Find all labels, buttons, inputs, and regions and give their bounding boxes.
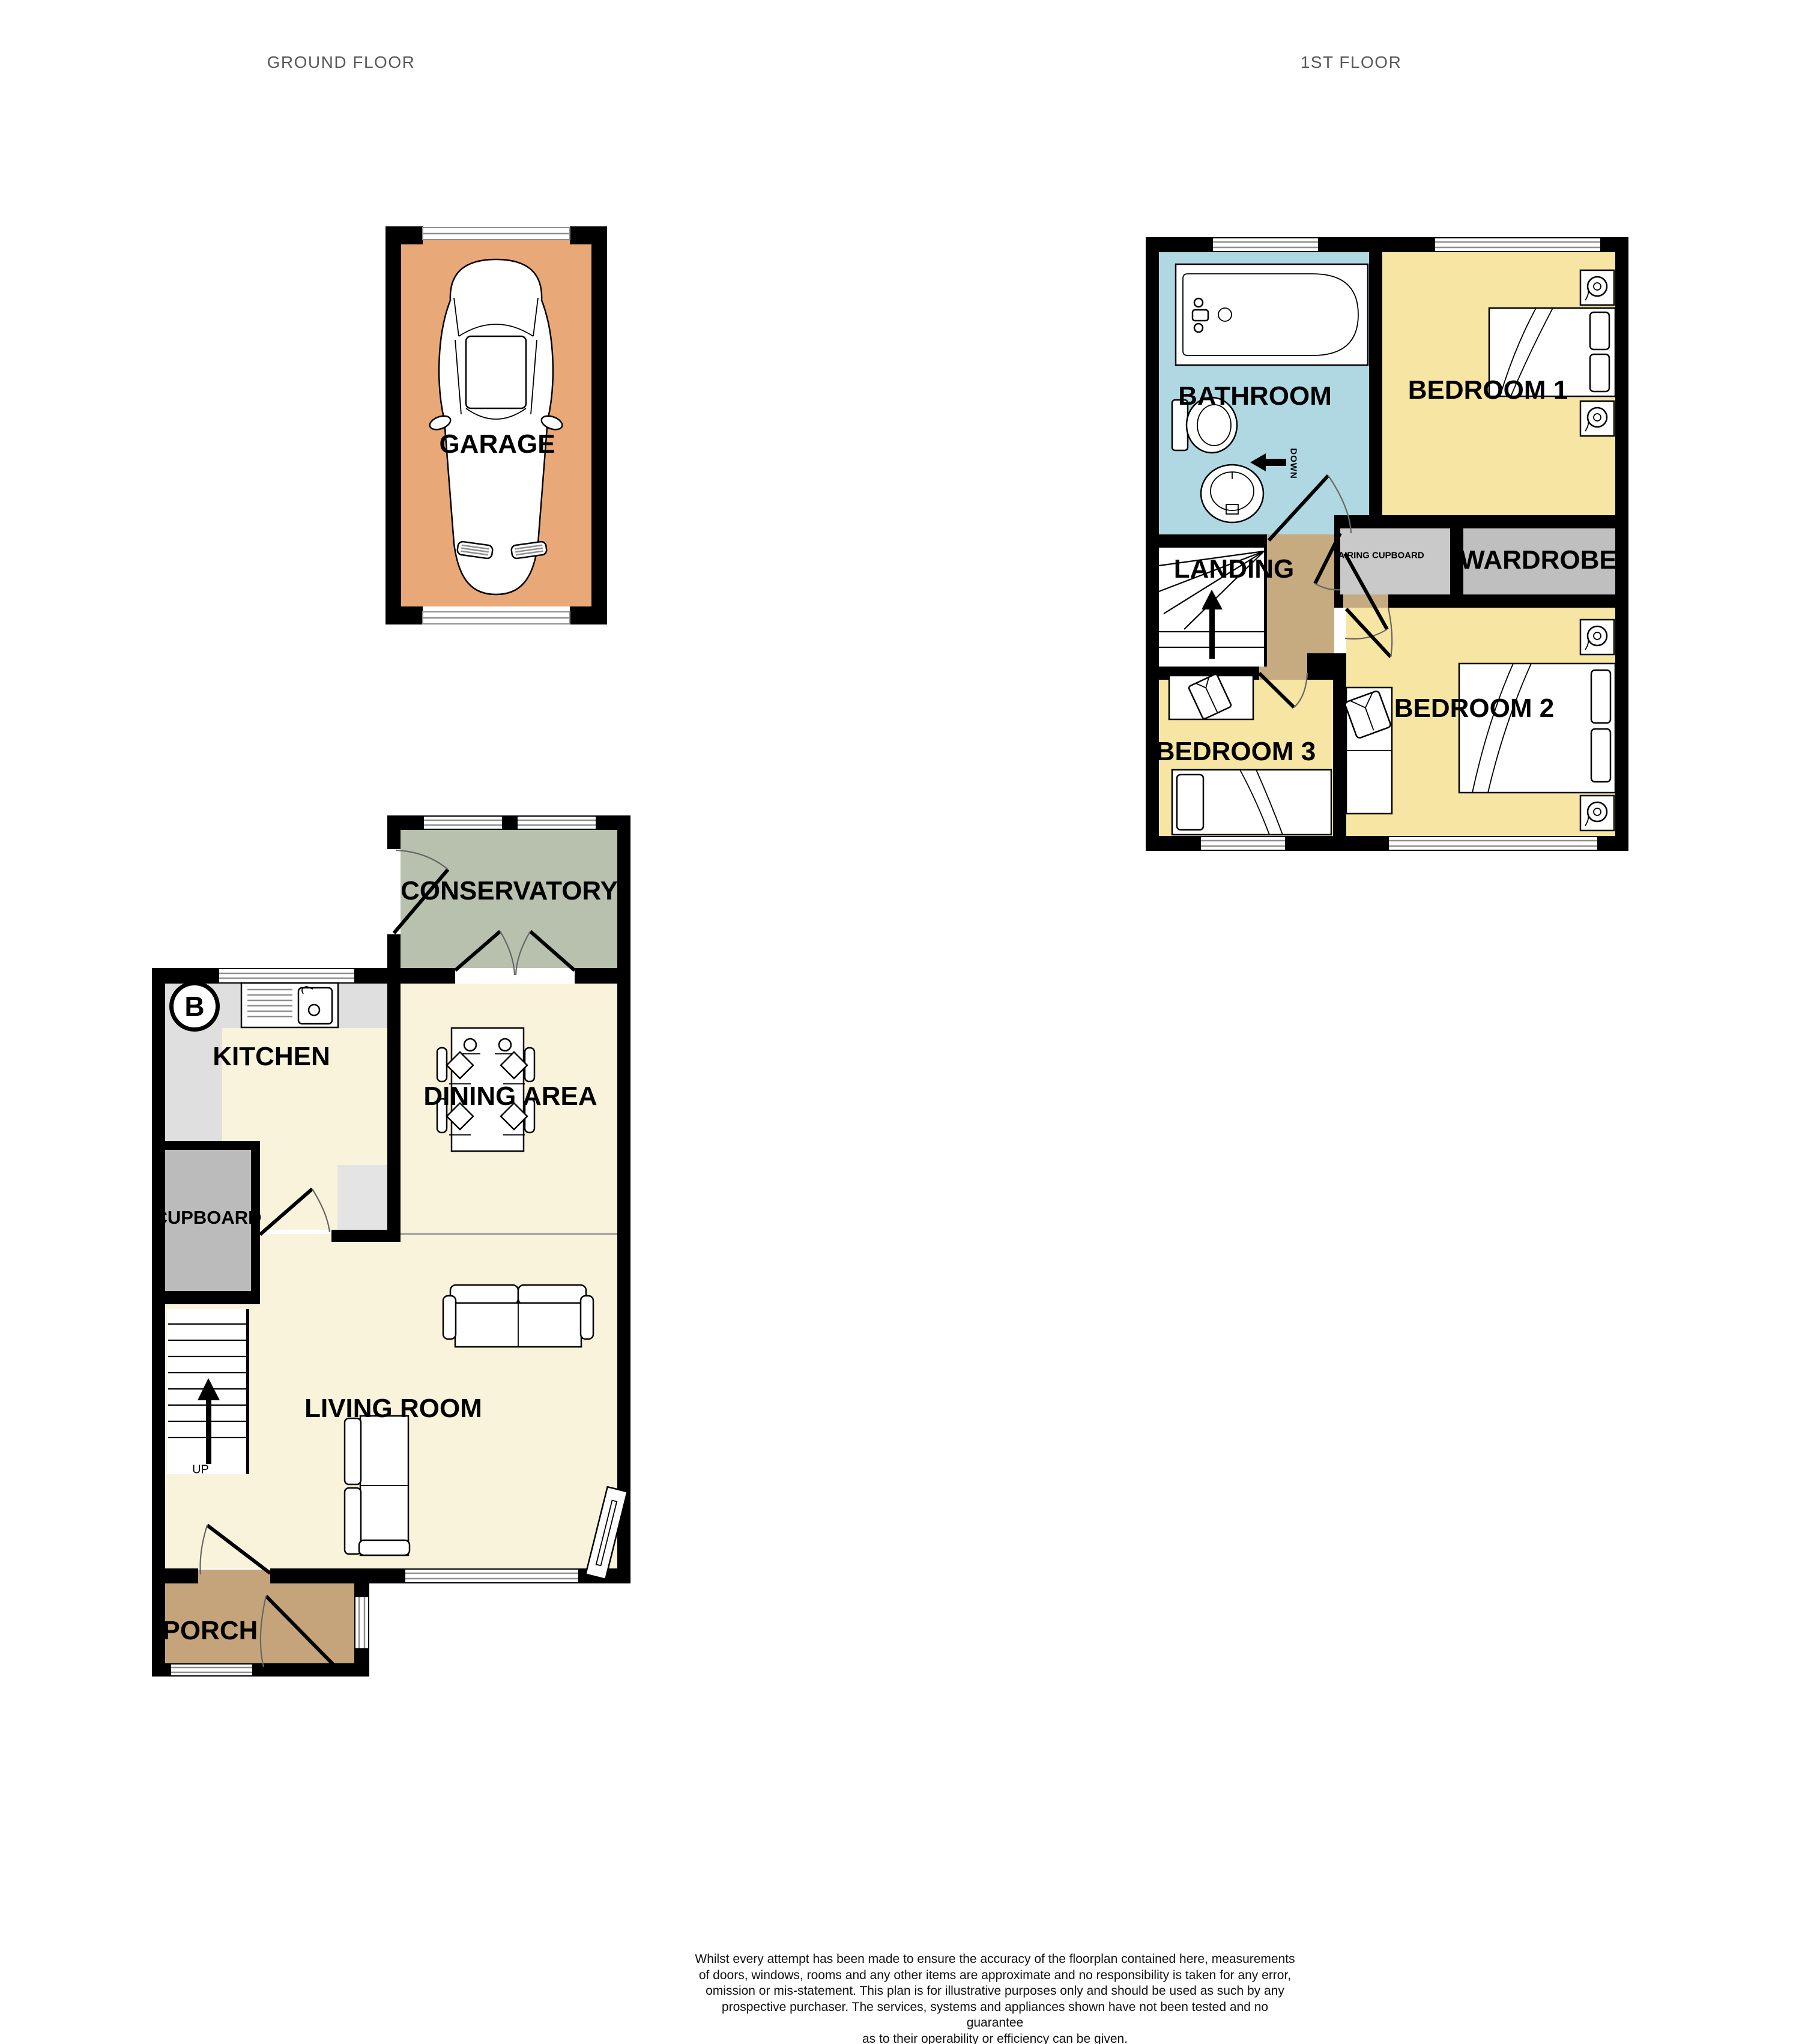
landing-floor-threshold-bed3 (1259, 667, 1307, 680)
conservatory-label: CONSERVATORY (401, 876, 618, 906)
landing-label: LANDING (1174, 554, 1294, 584)
landing-floor-threshold-bed2 (1343, 594, 1388, 608)
porch-exterior-door-threshold (261, 1665, 336, 1675)
bathroom-label: BATHROOM (1178, 381, 1332, 411)
ground-floor-title: GROUND FLOOR (267, 53, 416, 72)
disclaimer: Whilst every attempt has been made to en… (695, 1952, 1295, 2044)
dining-area-label: DINING AREA (423, 1081, 597, 1111)
stairs-down-label: DOWN (1289, 448, 1299, 479)
cupboard-label: CUPBOARD (154, 1207, 261, 1229)
airing-cupboard-label: AIRING CUPBOARD (1338, 551, 1424, 561)
airing-cupboard-floor (1340, 528, 1450, 594)
bedroom3-label: BEDROOM 3 (1156, 737, 1316, 767)
plan-marker-b-letter: B (184, 990, 204, 1023)
porch-door-threshold (198, 1570, 270, 1583)
wardrobe-label: WARDROBE (1460, 545, 1617, 575)
floorplan-sheet: GROUND FLOOR 1ST FLOOR (0, 0, 1802, 2044)
plan-marker-b: B (169, 981, 220, 1032)
kitchen-label: KITCHEN (213, 1042, 330, 1072)
stairs-up-label: UP (192, 1463, 209, 1477)
bedroom1-label: BEDROOM 1 (1408, 375, 1568, 405)
living-room-label: LIVING ROOM (304, 1394, 482, 1424)
garage-label: GARAGE (439, 429, 555, 459)
gf-stairs-area (167, 1309, 246, 1474)
bedroom2-label: BEDROOM 2 (1394, 694, 1554, 724)
garage-floor (401, 238, 591, 606)
disclaimer-lines: Whilst every attempt has been made to en… (695, 1952, 1295, 2044)
porch-label: PORCH (163, 1616, 258, 1646)
first-floor-title: 1ST FLOOR (1301, 53, 1402, 72)
kitchen-appliance (337, 1165, 387, 1230)
